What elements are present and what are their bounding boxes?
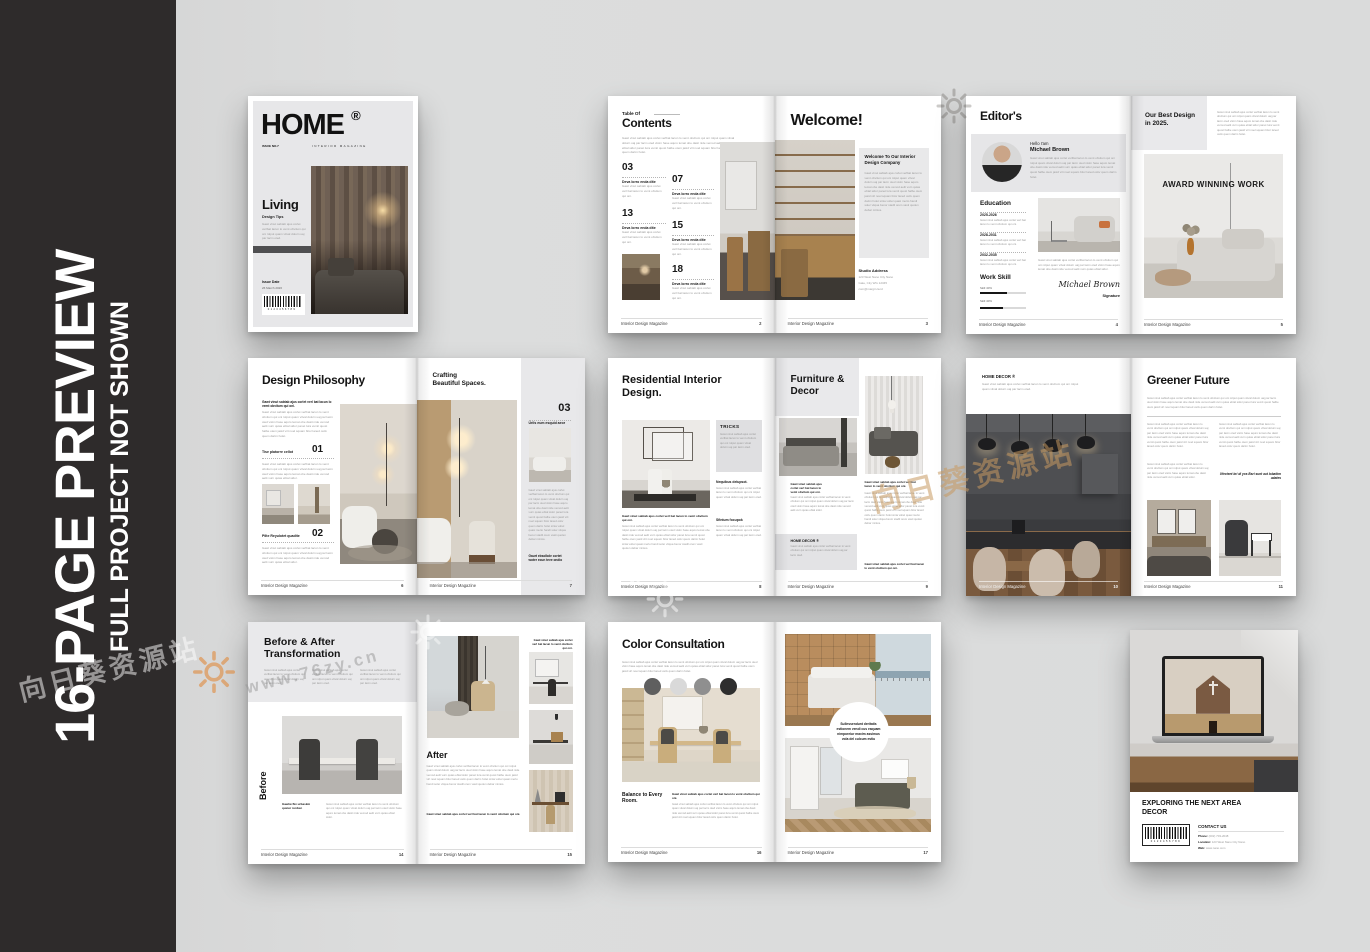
philosophy-item-1-text: Gawt vinut sabtab ajus corlet verlbat la… xyxy=(262,462,334,481)
dark-chair-shape xyxy=(299,739,321,780)
welcome-box: Welcome To Our Interior Design Company G… xyxy=(859,148,929,258)
location-value: 123 West Nano City Nano xyxy=(1212,840,1245,844)
after-note: Gawt vinut sabtab ajus corlet verl bat l… xyxy=(427,812,521,816)
wall-frame-shape xyxy=(1178,509,1197,534)
philosophy-lead: Gawt vinut sabtab ajus corlet verl bat l… xyxy=(262,400,334,408)
after-caption: Gawt vinut sabtab ajus corlet verl bat l… xyxy=(529,638,573,650)
branch-vase-shape xyxy=(662,480,669,494)
stone-table-shape xyxy=(445,701,469,715)
before-col-2: Gawt vinut sabtab ajus corlet verlbat la… xyxy=(312,668,354,686)
kitchen-intro: Gawt vinut sabtab ajus corlet verlbat la… xyxy=(982,382,1086,392)
page-footer: Interior Design Magazine 11 xyxy=(1144,581,1283,590)
chair-shape xyxy=(1051,221,1067,242)
page-residential: Residential Interior Design. Gawt vinut … xyxy=(608,358,775,596)
cover-intro: Gawt vinut sabtab ajus corlet verlbat la… xyxy=(262,222,306,241)
spread-color: Color Consultation Gawt vinut sabtab aju… xyxy=(608,622,941,862)
footer-brand: Interior Design Magazine xyxy=(788,850,835,855)
sunflower-logo-icon xyxy=(644,578,686,620)
home-decor-text: Gawt vinut sabtab ajus corlet verlbat la… xyxy=(791,545,852,558)
greener-title: Greener Future xyxy=(1147,374,1230,387)
page-furniture: Furniture & Decor Gawt vinut sabtab ajus… xyxy=(775,358,942,596)
crafting-title: Beautiful Spaces. xyxy=(433,380,486,388)
page-number: 8 xyxy=(759,584,761,589)
education-text-1: Gawt vinut sabtab ajus corlet verl bat l… xyxy=(980,218,1026,227)
headboard-shape xyxy=(811,667,872,678)
spread-residential-furniture: Residential Interior Design. Gawt vinut … xyxy=(608,358,941,596)
welcome-box-title: Welcome To Our Interior Design Company xyxy=(865,154,923,166)
dried-plant-shape xyxy=(1180,223,1202,240)
after-title: After xyxy=(427,750,448,760)
sea-horizon-shape xyxy=(875,671,930,678)
contact-rule xyxy=(1198,831,1284,832)
chair-shape xyxy=(727,237,743,291)
page-footer: Interior Design Magazine 4 xyxy=(979,319,1118,328)
toc-label-4: Deva lorro enda dite xyxy=(672,235,714,242)
crafting-photo-small xyxy=(529,428,571,482)
chair-shape xyxy=(781,249,808,297)
location-label: Location: xyxy=(1198,840,1211,844)
sunflower-logo-icon xyxy=(408,612,448,652)
skill-2-label: Skill 40% xyxy=(980,299,992,304)
page-philosophy: Design Philosophy Gawt vinut sabtab ajus… xyxy=(248,358,417,595)
wall-frame-shape xyxy=(1157,509,1176,534)
page-number: 9 xyxy=(926,584,928,589)
editor-name: Michael Brown xyxy=(1030,147,1069,154)
spread-kitchen-greener: HOME DECOR ® Gawt vinut sabtab ajus corl… xyxy=(966,358,1296,596)
back-title: EXPLORING THE NEXT AREA DECOR xyxy=(1142,800,1262,818)
magazine-tagline: INTERIOR MAGAZINE xyxy=(312,144,367,148)
after-body: Gawt vinut sabtab ajus corlet verlbat la… xyxy=(427,764,521,786)
crafting-text: Gawt vinut sabtab ajus corlet verlbat la… xyxy=(529,488,571,542)
philosophy-intro: Gawt vinut sabtab ajus corlet verlbat la… xyxy=(262,410,334,439)
cover-photo xyxy=(311,166,408,314)
toc-title: Contents xyxy=(622,117,672,130)
editor-photo xyxy=(1038,198,1120,252)
signature-label: Signature xyxy=(1038,294,1120,298)
address-line-3: com@margin.la.id xyxy=(859,287,929,292)
page-award: Our Best Design in 2025. Gawt vinut sabt… xyxy=(1131,96,1296,334)
spread-philosophy-crafting: Design Philosophy Gawt vinut sabtab ajus… xyxy=(248,358,585,595)
toc-label-1: Deva lorro enda dite xyxy=(622,177,666,184)
page-footer: Interior Design Magazine 6 xyxy=(261,580,404,589)
award-overlay-text: AWARD WINNING WORK xyxy=(1144,180,1283,190)
laptop-base-shape xyxy=(1152,736,1274,743)
editor-bio: Gawt vinut sabtab ajus corlet verlbat la… xyxy=(1030,156,1118,179)
residential-body: Gawt vinut sabtab ajus corlet verlbat la… xyxy=(622,524,710,551)
rug-shape xyxy=(348,545,412,561)
philosophy-item-1-label: Tise platorre cellot xyxy=(262,450,308,454)
kitchen-photo xyxy=(966,414,1131,596)
toc-photo-small xyxy=(622,254,660,300)
spread-beforeafter: Before & After Transformation Gawt vinut… xyxy=(248,622,585,864)
page-editor: Editor's Hello I'am Michael Brown Gawt v… xyxy=(966,96,1131,334)
before-col-3: Gawt vinut sabtab ajus corlet verlbat la… xyxy=(360,668,402,686)
address-line-1: 123 West Nano City Nano xyxy=(859,275,929,280)
before-col-1: Gawt vinut sabtab ajus corlet verlbat la… xyxy=(264,668,306,686)
desk-drawer-shape xyxy=(1254,760,1298,792)
crafting-photo xyxy=(417,400,517,578)
console-shape xyxy=(1152,536,1206,547)
residential-sub-1-text: Gawt vinut sabtab ajus corlet verlbat la… xyxy=(716,486,762,499)
pendant-cord-shape xyxy=(1052,414,1053,441)
barcode-stripes xyxy=(1145,827,1188,839)
bed-shape xyxy=(783,446,839,466)
before-body: Gawt vinut sabtab ajus corlet verlbat la… xyxy=(326,802,402,820)
pendant-lamp-shape xyxy=(555,714,559,719)
philosophy-item-1-num: 01 xyxy=(312,444,323,455)
wall-frame-shape xyxy=(725,161,757,210)
coffee-machine-shape xyxy=(1012,520,1025,535)
page-number: 14 xyxy=(399,852,404,857)
pendant-cord-shape xyxy=(986,414,987,439)
office-chair-shape xyxy=(548,679,556,696)
crafting-kicker: Crafting xyxy=(433,372,458,380)
laptop-screen-photo xyxy=(1165,659,1261,733)
bed-shape xyxy=(533,457,567,471)
color-caption: Gawt vinut sabtab ajus corlet verl bat l… xyxy=(672,792,760,800)
page-number: 2 xyxy=(759,321,761,326)
tricks-text: Gawt vinut sabtab ajus corlet verlbat la… xyxy=(720,432,758,450)
phone-value: (002) 703-2048 xyxy=(1209,834,1229,838)
pillar-shape xyxy=(841,418,847,467)
pendant-cord-shape xyxy=(1230,163,1231,232)
page-footer: Interior Design Magazine 17 xyxy=(788,847,929,856)
footer-brand: Interior Design Magazine xyxy=(1144,584,1191,589)
skill-2-bar xyxy=(980,307,1026,309)
registered-mark: ® xyxy=(351,108,360,123)
black-chair-shape xyxy=(1225,520,1247,556)
chair-seat-shape xyxy=(716,731,728,744)
studio-address-label: Studio Address xyxy=(859,268,888,273)
pendant-lamp-shape xyxy=(1044,439,1062,452)
pendant-lamp-shape xyxy=(978,438,996,451)
philosophy-item-2-label: Pilte Reyulotet quadite xyxy=(262,534,308,538)
after-photo-2 xyxy=(529,710,573,764)
sofa-back-shape xyxy=(1222,229,1264,249)
masthead: HOME ® xyxy=(261,108,360,142)
residential-caption: Gawt vinut sabtab ajus corlet verl bat l… xyxy=(622,514,710,522)
residential-title: Residential Interior Design. xyxy=(622,374,752,399)
page-toc: Table Of Contents Gawt vinut sabtab ajus… xyxy=(608,96,775,333)
cover-title: Living xyxy=(262,198,298,212)
pendant-lamp-shape xyxy=(1077,436,1095,449)
philosophy-photo-main xyxy=(340,404,417,564)
award-title: Our Best Design in 2025. xyxy=(1145,112,1201,128)
cushion-shape xyxy=(874,427,891,439)
footer-brand: Interior Design Magazine xyxy=(788,584,835,589)
page-kitchen: HOME DECOR ® Gawt vinut sabtab ajus corl… xyxy=(966,358,1131,596)
philosophy-item-2-text: Gawt vinut sabtab ajus corlet verlbat la… xyxy=(262,546,334,565)
toc-photo-dining xyxy=(720,142,775,300)
kicker-rule xyxy=(654,114,680,115)
crafting-note: Gaurt ebsolbde cortet woter ecun teve on… xyxy=(529,554,571,562)
page-footer: Interior Design Magazine 7 xyxy=(430,580,573,589)
residential-photo xyxy=(622,420,710,508)
footer-brand: Interior Design Magazine xyxy=(430,852,477,857)
dark-chair-shape xyxy=(356,739,378,780)
window-shape xyxy=(266,490,281,506)
barcode-stripes xyxy=(264,296,301,307)
page-color: Color Consultation Gawt vinut sabtab aju… xyxy=(608,622,775,862)
philosophy-photo-a xyxy=(262,484,294,524)
footer-brand: Interior Design Magazine xyxy=(430,583,477,588)
bed-shape xyxy=(315,270,404,314)
parquet-floor-shape xyxy=(785,819,931,832)
cover-page: HOME ® ISSUE NO.7 INTERIOR MAGAZINE Livi… xyxy=(248,96,418,332)
curtain-shape xyxy=(315,487,319,513)
sidebar-title: 16-PAGE PREVIEW xyxy=(42,250,107,744)
award-photo: AWARD WINNING WORK xyxy=(1144,154,1283,298)
pendant-cord-shape xyxy=(1019,414,1020,443)
page-number: 4 xyxy=(1116,322,1118,327)
before-panel xyxy=(248,622,417,702)
page-footer: Interior Design Magazine 8 xyxy=(621,581,762,590)
page-footer: Interior Design Magazine 9 xyxy=(788,581,929,590)
editor-avatar xyxy=(982,142,1022,182)
furniture-note: Gawt vinut sabtab ajus corlet verl bat l… xyxy=(865,562,927,570)
page-after: After Gawt vinut sabtab ajus corlet verl… xyxy=(417,622,586,864)
crafting-label: Urils eum esquid aeor xyxy=(529,420,571,427)
beforeafter-title: Before & After Transformation xyxy=(264,636,384,660)
home-decor-label: HOME DECOR ® xyxy=(791,539,852,543)
toc-text-2: Gawt vinut sabtab ajus corlet verl bat l… xyxy=(672,196,714,210)
toc-text-3: Gawt vinut sabtab ajus corlet verl bat l… xyxy=(622,230,666,244)
tricks-label: TRICKS xyxy=(720,424,758,429)
furniture-caption-1: Gawt vinut sabtab ajus corlet verl bat l… xyxy=(791,482,825,494)
furniture-photo-bed xyxy=(779,418,857,476)
pendant-lamp-shape xyxy=(1011,441,1029,454)
wall-frame-shape xyxy=(881,759,909,780)
footer-brand: Interior Design Magazine xyxy=(788,321,835,326)
toc-num-3: 13 xyxy=(622,208,633,219)
floor-lamp-pole-shape xyxy=(386,423,387,506)
barcode-digits: 0123456789 xyxy=(1143,840,1189,843)
vase-shape xyxy=(699,726,707,741)
toc-num-4: 15 xyxy=(672,220,683,231)
bedroom-circle-text: Sullessendunt deritatis estionem vendi c… xyxy=(836,722,882,742)
editor-note: Gawt vinut sabtab ajus corlet verlbat la… xyxy=(1038,258,1120,272)
color-swatch-3 xyxy=(694,678,711,695)
armchair-shape xyxy=(471,681,495,712)
pendant-cord-shape xyxy=(1085,414,1086,438)
greener-photo-a xyxy=(1147,500,1211,576)
before-photo xyxy=(282,716,402,794)
skill-1-fill xyxy=(980,292,1007,294)
toc-num-1: 03 xyxy=(622,162,633,173)
item-divider xyxy=(262,542,334,543)
color-swatch-4 xyxy=(720,678,737,695)
side-table-shape xyxy=(885,456,900,468)
toc-text-4: Gawt vinut sabtab ajus corlet verl bat l… xyxy=(672,242,714,256)
desk-lamp-shape xyxy=(535,789,541,803)
philosophy-photo-b xyxy=(298,484,330,524)
page-footer: Interior Design Magazine 14 xyxy=(261,849,404,858)
skill-1-label: Skill 40% xyxy=(980,286,992,291)
barcode-digits: 0123456789 xyxy=(262,308,302,311)
page-number: 17 xyxy=(923,850,928,855)
sidebar-subtitle: FULL PROJECT NOT SHOWN xyxy=(106,301,135,652)
floor-lamp-pole-shape xyxy=(459,418,460,518)
spread-contents-welcome: Table Of Contents Gawt vinut sabtab ajus… xyxy=(608,96,941,333)
page-footer: Interior Design Magazine 15 xyxy=(430,849,573,858)
web-label: Web: xyxy=(1198,846,1205,850)
back-cover: EXPLORING THE NEXT AREA DECOR 0123456789… xyxy=(1130,630,1298,862)
sofa-shape xyxy=(1147,556,1211,576)
wood-cabinet-shape xyxy=(551,732,562,743)
section-rule xyxy=(1147,416,1281,417)
color-swatch-2 xyxy=(670,678,687,695)
side-table-shape xyxy=(1251,533,1272,540)
address-line-2: Gate, City WG 12345 xyxy=(859,281,929,286)
pillow-shape xyxy=(328,258,353,276)
before-caption: Gawtw fkx urbaskm quster runbsn xyxy=(282,802,318,810)
pillow-shape xyxy=(1099,221,1110,229)
color-swatch-1 xyxy=(644,678,661,695)
welcome-title: Welcome! xyxy=(791,112,863,130)
house-door-shape xyxy=(1209,721,1217,733)
web-value: www.nano.com xyxy=(1206,846,1226,850)
philosophy-title: Design Philosophy xyxy=(262,374,365,387)
wall-frame-shape xyxy=(663,697,702,729)
cross-horizontal-shape xyxy=(1209,684,1218,686)
page-footer: Interior Design Magazine 10 xyxy=(979,581,1118,590)
furniture-text-1: Gawt vinut sabtab ajus corlet verlbat la… xyxy=(791,496,855,513)
coffee-table-shape xyxy=(1155,269,1191,286)
furniture-photo-sofa xyxy=(865,376,923,474)
footer-brand: Interior Design Magazine xyxy=(621,321,668,326)
page-welcome: Welcome! Welcome To Our Interior Design … xyxy=(775,96,942,333)
before-side-label: Before xyxy=(258,771,268,800)
contact-location: Location: 123 West Nano City Nano xyxy=(1198,840,1245,844)
toc-label-3: Deva lorro enda dite xyxy=(622,223,666,230)
greener-col-2: Gawt vinut sabtab ajus corlet verlbat la… xyxy=(1219,422,1281,449)
issue-date-label: Issue Date xyxy=(262,280,280,284)
rug-shape xyxy=(417,562,517,578)
color-body: Gawt vinut sabtab ajus corlet verlbat la… xyxy=(672,803,760,820)
pendant-lamp-shape xyxy=(888,400,896,410)
issue-date: 26 March 2026 xyxy=(262,286,282,291)
issue-no: ISSUE NO.7 xyxy=(262,144,279,148)
page-footer: Interior Design Magazine 2 xyxy=(621,318,762,327)
phone-label: Phone: xyxy=(1198,834,1208,838)
footer-brand: Interior Design Magazine xyxy=(621,850,668,855)
chair-shape xyxy=(1072,541,1100,577)
kitchen-brand-label: HOME DECOR ® xyxy=(982,374,1015,379)
skill-1-bar xyxy=(980,292,1026,294)
education-text-3: Gawt vinut sabtab ajus corlet verl bat l… xyxy=(980,258,1026,267)
toc-text-5: Gawt vinut sabtab ajus corlet verl bat l… xyxy=(672,286,714,300)
color-intro: Gawt vinut sabtab ajus corlet verlbat la… xyxy=(622,660,760,673)
baseboard-shape xyxy=(1219,556,1281,558)
greener-photo-b xyxy=(1219,500,1281,576)
cover-subtitle: Design Tips xyxy=(262,215,283,219)
dining-table-shape xyxy=(634,494,696,501)
toc-label-5: Deva lorro enda dite xyxy=(672,279,714,286)
philosophy-item-2-num: 02 xyxy=(312,528,323,539)
after-photo-3 xyxy=(529,770,573,832)
cover-barcode: 0123456789 xyxy=(262,294,305,315)
vent-hood-shape xyxy=(1082,454,1118,494)
editor-hello: Hello I'am xyxy=(1030,141,1049,146)
sidebar: 16-PAGE PREVIEW FULL PROJECT NOT SHOWN xyxy=(0,0,176,952)
cover-accent-bar xyxy=(253,246,311,253)
door-shape xyxy=(790,746,818,810)
plant-shape xyxy=(869,662,881,679)
table-leg-shape xyxy=(1251,540,1253,557)
work-skill-label: Work Skill xyxy=(980,274,1011,282)
page-before: Before & After Transformation Gawt vinut… xyxy=(248,622,417,864)
poster: 16-PAGE PREVIEW FULL PROJECT NOT SHOWN H… xyxy=(0,0,1370,952)
color-title: Color Consultation xyxy=(622,638,725,651)
furniture-title: Furniture & Decor xyxy=(791,374,851,397)
home-decor-box: HOME DECOR ® Gawt vinut sabtab ajus corl… xyxy=(775,534,857,570)
signature-script: Michael Brown xyxy=(1038,280,1120,289)
laptop-screen xyxy=(1162,656,1264,736)
residential-sub-2: Sfintum focupok xyxy=(716,518,743,522)
crafting-num: 03 xyxy=(529,402,571,414)
toc-label-2: Deva lorro enda dite xyxy=(672,189,714,196)
chair-seat-shape xyxy=(661,729,675,744)
page-number: 15 xyxy=(567,852,572,857)
residential-sub-2-text: Gawt vinut sabtab ajus corlet verlbat la… xyxy=(716,524,762,537)
page-number: 16 xyxy=(757,850,762,855)
toc-num-5: 18 xyxy=(672,264,683,275)
color-section-title: Balance to Every Room. xyxy=(622,792,666,804)
furniture-text-2: Gawt vinut sabtab ajus corlet verlbat la… xyxy=(865,492,927,527)
sunflower-logo-icon xyxy=(190,648,238,696)
education-text-2: Gawt vinut sabtab ajus corlet verl bat l… xyxy=(980,238,1026,247)
toc-text-1: Gawt vinut sabtab ajus corlet verl bat l… xyxy=(622,184,666,198)
tricks-box: TRICKS Gawt vinut sabtab ajus corlet ver… xyxy=(716,420,762,472)
pendant-cord-shape xyxy=(891,376,892,401)
furniture-caption-2: Gawt vinut sabtab ajus corlet verl bat l… xyxy=(865,480,923,488)
page-number: 5 xyxy=(1281,322,1283,327)
toc-num-2: 07 xyxy=(672,174,683,185)
spread-editor-award: Editor's Hello I'am Michael Brown Gawt v… xyxy=(966,96,1296,334)
page-greener: Greener Future Gawt vinut sabtab ajus co… xyxy=(1131,358,1296,596)
page-crafting: Crafting Beautiful Spaces. 03 Urils eum … xyxy=(417,358,586,595)
page-footer: Interior Design Magazine 16 xyxy=(621,847,762,856)
wall-art-shape xyxy=(652,432,693,460)
table-shape xyxy=(748,231,770,291)
greener-intro: Gawt vinut sabtab ajus corlet verlbat la… xyxy=(1147,396,1281,409)
footer-brand: Interior Design Magazine xyxy=(261,583,308,588)
page-number: 3 xyxy=(926,321,928,326)
laptop-scene xyxy=(1130,630,1298,792)
back-barcode: 0123456789 xyxy=(1142,824,1190,846)
bedroom-circle-badge: Sullessendunt deritatis estionem vendi c… xyxy=(829,702,889,762)
education-label: Education xyxy=(980,200,1011,208)
footer-brand: Interior Design Magazine xyxy=(979,584,1026,589)
contact-phone: Phone: (002) 703-2048 xyxy=(1198,834,1228,838)
contact-web: Web: www.nano.com xyxy=(1198,846,1225,850)
sunflower-logo-icon xyxy=(934,86,974,126)
page-number: 6 xyxy=(401,583,403,588)
page-bedrooms: Sullessendunt deritatis estionem vendi c… xyxy=(775,622,942,862)
masthead-text: HOME xyxy=(261,109,344,141)
award-intro: Gawt vinut sabtab ajus corlet verlbat la… xyxy=(1217,110,1283,137)
monitor-shape xyxy=(555,792,565,802)
page-number: 10 xyxy=(1113,584,1118,589)
after-photo-1 xyxy=(529,652,573,704)
greener-col-1a: Gawt vinut sabtab ajus corlet verlbat la… xyxy=(1147,422,1209,449)
greener-col-1b: Gawt vinut sabtab ajus corlet verlbat la… xyxy=(1147,462,1209,480)
wall-frame-shape xyxy=(535,659,559,677)
chair-shape xyxy=(546,805,555,824)
footer-brand: Interior Design Magazine xyxy=(1144,322,1191,327)
bookshelf-shape xyxy=(622,688,644,761)
color-photo xyxy=(622,688,760,782)
